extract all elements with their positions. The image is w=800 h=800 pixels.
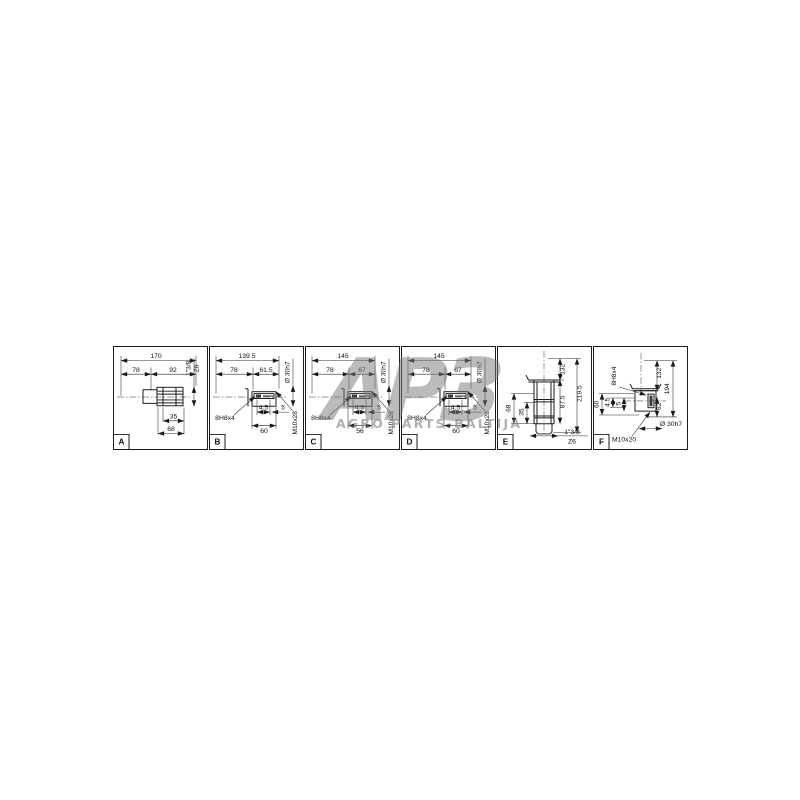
f-keyway-label: 8H8x4 <box>611 366 618 385</box>
c-keyway-label: 8H8x4 <box>311 415 331 422</box>
panel-d-drawing: 145 78 67 Ø 30h7 8H8x4 <box>402 347 495 449</box>
a-bottom-dimensions: 35 68 <box>158 407 184 434</box>
f-letter-box: F <box>594 434 609 449</box>
c-housing-outline <box>309 389 382 406</box>
a-spline-size: 1"3/8 <box>185 361 192 376</box>
d-housing-outline <box>405 389 478 406</box>
scanned-drawing-page: 170 78 92 1"3/8 Z6 <box>0 0 800 800</box>
f-thread-callout: M10x20 <box>612 412 650 444</box>
f-dim-l2: 4.5 <box>604 398 611 407</box>
c-thread: M10x28 <box>388 411 395 435</box>
f-letter: F <box>599 438 604 447</box>
e-dim-l1: 68 <box>505 404 512 412</box>
panel-b: 139.5 78 61.5 Ø 30h7 8H8x4 <box>209 346 304 450</box>
e-letter-box: E <box>498 434 513 449</box>
d-key-offset: 5 <box>473 405 477 412</box>
c-extension-lines <box>312 356 375 394</box>
e-dim-l2: 35 <box>518 408 525 416</box>
panel-c-drawing: 145 78 67 Ø 30h7 8H8x4 <box>306 347 399 449</box>
f-thread: M10x20 <box>612 437 636 444</box>
c-dim-width: 56 <box>356 428 364 435</box>
e-dim-r3: 219.5 <box>576 385 583 402</box>
panel-b-drawing: 139.5 78 61.5 Ø 30h7 8H8x4 <box>210 347 303 449</box>
f-dim-r2: 194 <box>664 383 671 394</box>
e-left-dimensions: 68 35 <box>505 394 534 424</box>
panel-e: 132 87.5 219.5 68 35 1"3/8 Z6 <box>497 346 592 450</box>
f-dim-l3: 5 <box>615 402 622 406</box>
a-dim-left: 78 <box>132 367 140 374</box>
b-thread: M10x28 <box>292 411 299 435</box>
b-extension-lines <box>216 356 279 394</box>
a-dim-b1: 35 <box>170 413 178 420</box>
f-dim-r3: 62 <box>656 402 663 410</box>
panel-f-drawing: 8H8x4 60 4.5 5 132 62 <box>594 347 687 449</box>
b-letter-box: B <box>210 434 225 449</box>
c-dim-right: 67 <box>358 367 366 374</box>
b-dim-total: 139.5 <box>239 353 256 360</box>
b-bore: Ø 30h7 <box>284 361 291 383</box>
d-dim-total: 145 <box>433 353 445 360</box>
a-dimensions: 170 78 92 1"3/8 Z6 <box>121 353 201 406</box>
e-dim-r2: 87.5 <box>559 395 566 408</box>
c-key-offset: 5 <box>377 405 381 412</box>
f-dim-l1: 60 <box>594 400 601 408</box>
d-keyway-label: 8H8x4 <box>407 415 427 422</box>
d-dim-right: 67 <box>454 367 462 374</box>
d-key-depth: 4.5 <box>451 405 461 412</box>
panel-a-drawing: 170 78 92 1"3/8 Z6 <box>114 347 207 449</box>
e-spline-teeth: Z6 <box>568 439 576 446</box>
c-letter-box: C <box>306 434 321 449</box>
a-dim-total: 170 <box>150 353 162 360</box>
e-right-dimensions: 132 87.5 219.5 <box>548 359 584 433</box>
c-dim-total: 145 <box>337 353 349 360</box>
panel-f: 8H8x4 60 4.5 5 132 62 <box>593 346 688 450</box>
a-dim-right: 92 <box>169 367 177 374</box>
b-letter: B <box>215 438 221 447</box>
f-bore: Ø 30h7 <box>660 421 683 428</box>
panel-c: 145 78 67 Ø 30h7 8H8x4 <box>305 346 400 450</box>
a-dim-b2: 68 <box>167 426 175 433</box>
b-dim-width: 60 <box>260 428 268 435</box>
a-spline-teeth: Z6 <box>193 364 200 372</box>
f-left-dimensions: 60 4.5 5 <box>594 394 639 415</box>
d-dim-left: 78 <box>422 367 430 374</box>
f-bore-dimension: Ø 30h7 <box>639 421 682 428</box>
panel-e-drawing: 132 87.5 219.5 68 35 1"3/8 Z6 <box>498 347 591 449</box>
c-bore: Ø 30h7 <box>380 361 387 383</box>
panel-a: 170 78 92 1"3/8 Z6 <box>113 346 208 450</box>
c-key-depth: 4.5 <box>355 405 365 412</box>
d-bore: Ø 30h7 <box>476 361 483 383</box>
b-key-offset: 5 <box>281 405 285 412</box>
b-dim-left: 78 <box>230 367 238 374</box>
d-letter: D <box>407 438 413 447</box>
b-housing-outline <box>213 389 286 406</box>
e-spline-dimension: 1"3/8 Z6 <box>530 429 588 446</box>
d-dim-width: 60 <box>452 428 460 435</box>
c-letter: C <box>311 438 317 447</box>
d-letter-box: D <box>402 434 417 449</box>
b-key-depth: 4.5 <box>259 405 269 412</box>
c-dim-left: 78 <box>326 367 334 374</box>
a-letter-box: A <box>114 434 129 449</box>
f-dim-r1: 132 <box>656 367 663 378</box>
e-letter: E <box>503 438 509 447</box>
d-thread: M10x28 <box>484 411 491 435</box>
b-keyway-label: 8H8x4 <box>215 415 235 422</box>
b-dim-right: 61.5 <box>259 367 272 374</box>
e-dim-r1: 132 <box>559 364 566 375</box>
e-spline-size: 1"3/8 <box>564 429 580 436</box>
a-letter: A <box>119 438 125 447</box>
a-shaft-outline <box>117 387 191 405</box>
d-extension-lines <box>408 356 471 394</box>
panel-d: 145 78 67 Ø 30h7 8H8x4 <box>401 346 496 450</box>
